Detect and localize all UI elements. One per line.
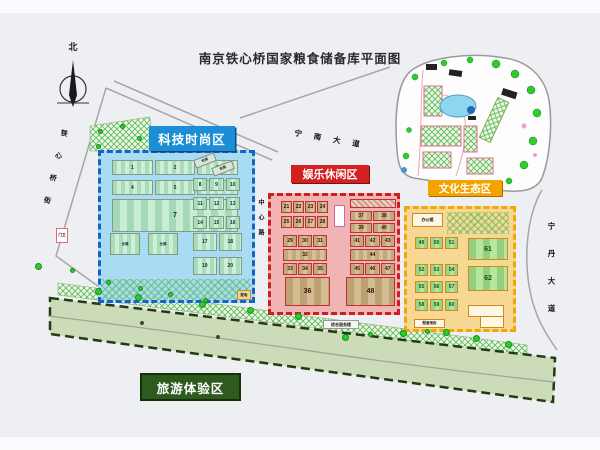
- compass-icon: 北: [57, 41, 89, 107]
- tree-icon: [425, 329, 430, 334]
- zone-fun: 2122232425262728 29303132333435 36 37383…: [268, 193, 400, 315]
- label-zone-fun: 娱乐休闲区: [291, 165, 369, 183]
- building-53: 53: [430, 264, 443, 276]
- fun-buildings-37-40: 37383940: [350, 211, 395, 233]
- building-12: 12: [209, 197, 223, 210]
- building-49: 49: [415, 237, 428, 249]
- building-15: 15: [209, 216, 223, 229]
- tree-icon: [203, 298, 208, 303]
- building-8: 8: [193, 178, 207, 191]
- tree-icon: [135, 294, 142, 301]
- culture-buildings-58-60: 585960: [415, 299, 458, 311]
- tree-icon: [106, 280, 111, 285]
- road-label-mid: 中心路: [256, 199, 265, 244]
- site-plan-canvas: 北 南京铁心桥国家粮食储备库平面图 123456 7 仓库仓库 89101112…: [0, 0, 600, 450]
- building-21: 21: [281, 201, 292, 213]
- culture-buildings-49-51: 495051: [415, 237, 458, 249]
- tree-icon: [138, 286, 143, 291]
- building-43: 43: [381, 235, 395, 247]
- tree-icon: [443, 329, 450, 336]
- building-1: 1: [112, 160, 153, 175]
- tech-buildings-17-18: 1718: [193, 233, 242, 251]
- building-26: 26: [293, 216, 304, 228]
- fun-buildings-21-28: 2122232425262728: [281, 201, 328, 228]
- tech-warehouse-pair: 仓库仓库: [110, 233, 178, 255]
- building-11: 11: [193, 197, 207, 210]
- building-50: 50: [430, 237, 443, 249]
- culture-lshape-bottom: [480, 316, 504, 328]
- culture-office: 办公楼: [412, 213, 443, 227]
- building-48: 48: [346, 277, 395, 306]
- building-33: 33: [283, 263, 297, 275]
- fun-buildings-41-47: 41424344454647: [350, 235, 395, 275]
- building-13: 13: [226, 197, 240, 210]
- road-label-right: 宁丹大道: [546, 222, 557, 332]
- pond-deep: [467, 106, 475, 114]
- building-60: 60: [445, 299, 458, 311]
- building-41: 41: [350, 235, 364, 247]
- shrub-icon: [140, 321, 144, 325]
- fun-buildings-29-35: 29303132333435: [283, 235, 327, 275]
- building-25: 25: [281, 216, 292, 228]
- building-31: 31: [313, 235, 327, 247]
- tree-icon: [368, 332, 373, 337]
- tree-icon: [96, 144, 101, 149]
- compass-north-label: 北: [68, 41, 77, 52]
- building-52: 52: [415, 264, 428, 276]
- tree-icon: [400, 330, 407, 337]
- tech-green-strip: [101, 279, 251, 300]
- kiosk: [334, 205, 345, 227]
- building-17: 17: [193, 233, 217, 251]
- building-30: 30: [298, 235, 312, 247]
- building-40: 40: [373, 223, 395, 233]
- page-title: 南京铁心桥国家粮食储备库平面图: [155, 48, 445, 67]
- building-18: 18: [219, 233, 243, 251]
- building-39: 39: [350, 223, 372, 233]
- building-61: 61: [468, 238, 508, 260]
- tree-icon: [473, 335, 480, 342]
- building-47: 47: [381, 263, 395, 275]
- culture-buildings-52-57: 525354555657: [415, 264, 458, 293]
- building-59: 59: [430, 299, 443, 311]
- building-10: 10: [226, 178, 240, 191]
- building-44: 44: [350, 249, 395, 261]
- building-58: 58: [415, 299, 428, 311]
- building-28: 28: [317, 216, 328, 228]
- building-38: 38: [373, 211, 395, 221]
- building-2: 2: [155, 160, 196, 175]
- building-23: 23: [305, 201, 316, 213]
- building-62: 62: [468, 266, 508, 291]
- building-35: 35: [313, 263, 327, 275]
- building-5: 5: [155, 180, 196, 195]
- tree-icon: [98, 129, 103, 134]
- tree-icon: [505, 341, 512, 348]
- building-19: 19: [193, 257, 217, 275]
- building-仓库: 仓库: [148, 233, 178, 255]
- building-仓库: 仓库: [110, 233, 140, 255]
- building-14: 14: [193, 216, 207, 229]
- building-57: 57: [445, 281, 458, 293]
- fun-parking: [350, 199, 396, 208]
- shrub-icon: [216, 335, 220, 339]
- tree-icon: [295, 313, 302, 320]
- service-building: 综合服务楼: [323, 320, 359, 329]
- zone-culture: 办公楼 495051 525354555657 585960 61 62 配套用…: [404, 206, 516, 332]
- building-46: 46: [365, 263, 379, 275]
- building-34: 34: [298, 263, 312, 275]
- building-37: 37: [350, 211, 372, 221]
- power-box: 配电: [237, 290, 251, 300]
- building-9: 9: [209, 178, 223, 191]
- label-zone-tour: 旅游体验区: [140, 373, 241, 401]
- building-32: 32: [283, 249, 327, 261]
- tree-icon: [95, 288, 102, 295]
- tree-icon: [120, 124, 125, 129]
- culture-green-patch: [447, 212, 509, 234]
- guard-house: 门卫: [56, 228, 68, 243]
- building-4: 4: [112, 180, 153, 195]
- zone-tech: 123456 7 仓库仓库 8910111213141516 1718 1920…: [98, 150, 255, 303]
- park-area: [396, 55, 551, 191]
- tree-icon: [247, 307, 254, 314]
- building-55: 55: [415, 281, 428, 293]
- building-56: 56: [430, 281, 443, 293]
- tech-buildings-8-16: 8910111213141516: [193, 178, 240, 229]
- building-20: 20: [219, 257, 243, 275]
- building-29: 29: [283, 235, 297, 247]
- building-36: 36: [285, 277, 330, 306]
- building-16: 16: [226, 216, 240, 229]
- tree-icon: [35, 263, 42, 270]
- building-27: 27: [305, 216, 316, 228]
- tree-icon: [137, 136, 142, 141]
- tech-buildings-19-20: 1920: [193, 257, 242, 275]
- tree-icon: [70, 268, 75, 273]
- building-45: 45: [350, 263, 364, 275]
- building-54: 54: [445, 264, 458, 276]
- building-24: 24: [317, 201, 328, 213]
- culture-annex: 配套用房: [414, 319, 445, 328]
- building-22: 22: [293, 201, 304, 213]
- building-51: 51: [445, 237, 458, 249]
- tree-icon: [342, 334, 349, 341]
- building-42: 42: [365, 235, 379, 247]
- tree-icon: [168, 292, 173, 297]
- label-zone-culture: 文化生态区: [428, 180, 502, 196]
- label-zone-tech: 科技时尚区: [149, 126, 235, 151]
